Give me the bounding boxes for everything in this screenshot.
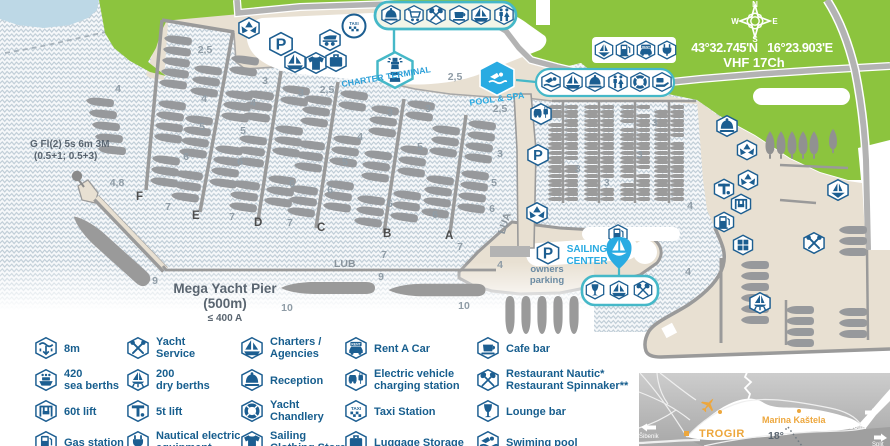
svg-text:6: 6 <box>432 209 438 221</box>
svg-text:Restaurant Nautic*: Restaurant Nautic* <box>506 368 605 380</box>
svg-text:P: P <box>543 245 553 262</box>
svg-text:2,5: 2,5 <box>493 103 508 115</box>
svg-text:Chandlery: Chandlery <box>270 411 325 423</box>
svg-text:TAXI: TAXI <box>351 406 361 411</box>
svg-text:4: 4 <box>497 259 503 271</box>
svg-text:6: 6 <box>183 151 189 163</box>
svg-text:Solin: Solin <box>849 424 866 431</box>
svg-text:Taxi Station: Taxi Station <box>374 406 436 418</box>
svg-text:Nautical electric: Nautical electric <box>156 430 240 442</box>
svg-text:7: 7 <box>457 241 463 253</box>
svg-text:6: 6 <box>237 156 243 168</box>
svg-text:4,8: 4,8 <box>110 177 125 189</box>
svg-text:N: N <box>752 0 758 9</box>
svg-text:Šibenik: Šibenik <box>639 433 660 440</box>
svg-text:charging station: charging station <box>374 380 460 392</box>
svg-text:Sailing: Sailing <box>270 430 306 442</box>
svg-text:E: E <box>772 17 778 26</box>
svg-text:3: 3 <box>604 178 610 189</box>
svg-text:3: 3 <box>637 150 643 161</box>
svg-text:4: 4 <box>357 131 363 143</box>
svg-text:B: B <box>383 228 391 240</box>
svg-text:2,5: 2,5 <box>320 84 335 96</box>
svg-text:Rent A Car: Rent A Car <box>374 343 431 355</box>
svg-text:6: 6 <box>289 178 295 190</box>
svg-text:10: 10 <box>458 300 470 312</box>
svg-text:TAXI: TAXI <box>349 21 358 26</box>
svg-text:5: 5 <box>417 141 423 153</box>
svg-text:6: 6 <box>489 203 495 215</box>
svg-text:E: E <box>192 210 200 222</box>
svg-text:Yacht: Yacht <box>270 399 300 411</box>
svg-text:6: 6 <box>327 184 333 196</box>
svg-text:LUB: LUB <box>334 258 356 270</box>
svg-text:3: 3 <box>387 107 393 119</box>
svg-text:Split: Split <box>872 442 884 446</box>
svg-text:2,5: 2,5 <box>198 44 213 56</box>
svg-text:5: 5 <box>342 156 348 168</box>
svg-text:420: 420 <box>64 368 82 380</box>
svg-text:8m: 8m <box>64 343 80 355</box>
svg-text:Yacht: Yacht <box>156 336 186 348</box>
svg-text:3: 3 <box>262 75 268 87</box>
svg-text:(0.5+1; 0.5+3): (0.5+1; 0.5+3) <box>34 151 97 162</box>
svg-text:W: W <box>731 17 739 26</box>
svg-text:5t lift: 5t lift <box>156 406 183 418</box>
svg-text:9: 9 <box>378 271 384 283</box>
svg-text:parking: parking <box>530 275 565 286</box>
svg-text:3: 3 <box>497 148 503 160</box>
svg-text:4: 4 <box>687 200 693 212</box>
svg-text:7: 7 <box>165 201 171 213</box>
svg-text:3: 3 <box>298 87 304 99</box>
svg-text:Swiming pool: Swiming pool <box>506 437 578 446</box>
svg-text:C: C <box>317 222 325 234</box>
svg-text:18°: 18° <box>768 430 784 442</box>
svg-text:Cafe bar: Cafe bar <box>506 343 551 355</box>
svg-text:Restaurant Spinnaker**: Restaurant Spinnaker** <box>506 380 629 392</box>
svg-text:Electric vehicle: Electric vehicle <box>374 368 454 380</box>
svg-text:TROGIR: TROGIR <box>699 428 745 440</box>
svg-text:4: 4 <box>250 97 256 109</box>
svg-text:Reception: Reception <box>270 375 323 387</box>
svg-text:Lounge bar: Lounge bar <box>506 406 567 418</box>
svg-text:Marina Kaštela: Marina Kaštela <box>762 415 827 425</box>
svg-text:Gas station: Gas station <box>64 437 124 446</box>
svg-text:4: 4 <box>685 266 691 278</box>
svg-text:D: D <box>254 217 262 229</box>
svg-text:Service: Service <box>156 348 195 360</box>
svg-text:6: 6 <box>387 198 393 210</box>
svg-text:equipment: equipment <box>156 442 212 446</box>
svg-text:Agencies: Agencies <box>270 348 319 360</box>
svg-text:7: 7 <box>381 249 387 261</box>
svg-text:P: P <box>276 36 287 54</box>
svg-text:Charters /: Charters / <box>270 336 321 348</box>
svg-text:P: P <box>533 148 543 164</box>
svg-text:4: 4 <box>201 93 207 105</box>
svg-text:Mega Yacht Pier: Mega Yacht Pier <box>173 281 277 296</box>
svg-text:≤ 400 A: ≤ 400 A <box>208 313 243 324</box>
svg-text:Luggage Storage: Luggage Storage <box>374 437 464 446</box>
svg-text:RENT: RENT <box>351 342 361 346</box>
svg-text:2,5: 2,5 <box>448 71 463 83</box>
svg-text:3: 3 <box>575 164 581 175</box>
svg-text:5: 5 <box>199 121 205 133</box>
svg-text:200: 200 <box>156 368 174 380</box>
svg-text:A: A <box>445 230 453 242</box>
svg-text:9: 9 <box>152 275 158 287</box>
svg-text:4: 4 <box>115 83 121 95</box>
svg-text:(500m): (500m) <box>203 296 247 311</box>
svg-text:CENTER: CENTER <box>566 256 608 267</box>
svg-text:10: 10 <box>281 302 293 314</box>
svg-text:43°32.745'N 16°23.903'E: 43°32.745'N 16°23.903'E <box>691 40 833 55</box>
svg-text:5: 5 <box>491 177 497 189</box>
svg-text:3: 3 <box>425 103 431 115</box>
svg-text:5: 5 <box>240 125 246 137</box>
svg-text:F: F <box>136 191 143 203</box>
svg-text:VHF 17Ch: VHF 17Ch <box>723 55 784 70</box>
svg-text:G Fl(2) 5s 6m 3M: G Fl(2) 5s 6m 3M <box>30 139 109 150</box>
svg-text:sea berths: sea berths <box>64 380 119 392</box>
svg-text:60t lift: 60t lift <box>64 406 97 418</box>
svg-text:RENT: RENT <box>642 45 650 49</box>
svg-text:dry berths: dry berths <box>156 380 210 392</box>
svg-text:Clothing Store: Clothing Store <box>270 442 346 446</box>
svg-text:7: 7 <box>287 217 293 229</box>
svg-text:7: 7 <box>229 211 235 223</box>
svg-text:owners: owners <box>530 264 563 275</box>
svg-text:3: 3 <box>652 118 658 129</box>
svg-text:SAILING: SAILING <box>567 244 608 255</box>
